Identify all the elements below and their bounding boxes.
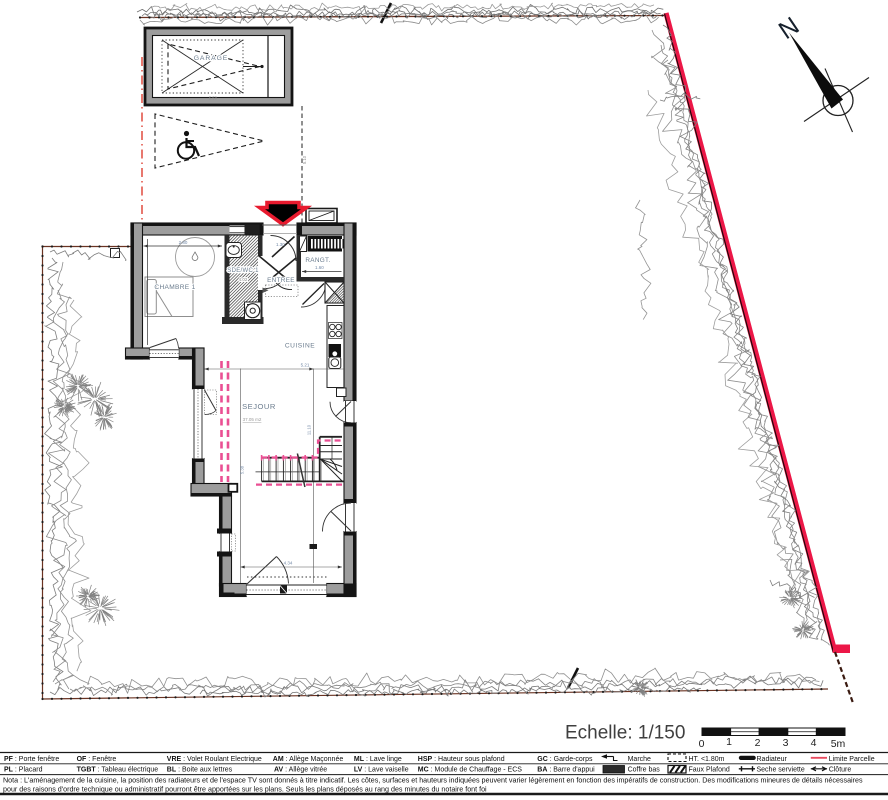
svg-text:4.34: 4.34: [284, 561, 293, 566]
svg-text:3: 3: [783, 737, 789, 749]
svg-text:Limite Parcelle: Limite Parcelle: [829, 756, 875, 763]
svg-text:Nota : L'aménagement de la cui: Nota : L'aménagement de la cuisine, la p…: [3, 777, 863, 785]
svg-text:HSP : Hauteur sous plafond: HSP : Hauteur sous plafond: [418, 756, 505, 763]
svg-text:RANGT.: RANGT.: [305, 257, 330, 264]
svg-text:37.05 m2: 37.05 m2: [243, 417, 262, 422]
svg-text:5.59: 5.59: [209, 96, 218, 101]
svg-text:pour des raisons d'ordre techn: pour des raisons d'ordre technique ou ad…: [3, 786, 487, 794]
svg-text:GC : Garde-corps: GC : Garde-corps: [537, 756, 593, 763]
svg-text:Marche: Marche: [628, 756, 651, 763]
svg-text:SDE/WC 1: SDE/WC 1: [227, 268, 259, 274]
svg-text:ML : Lave linge: ML : Lave linge: [354, 756, 402, 763]
svg-text:ENTREE: ENTREE: [267, 277, 295, 284]
svg-text:1.30: 1.30: [276, 242, 285, 247]
svg-text:HT. <1.80m: HT. <1.80m: [689, 756, 725, 763]
svg-text:2: 2: [755, 737, 761, 749]
svg-text:PF : Porte fenêtre: PF : Porte fenêtre: [4, 756, 59, 763]
svg-text:VRE : Volet Roulant Electrique: VRE : Volet Roulant Electrique: [167, 756, 262, 763]
svg-text:4: 4: [811, 737, 817, 749]
svg-text:CHAMBRE 1: CHAMBRE 1: [154, 284, 195, 291]
svg-text:PL : Placard: PL : Placard: [4, 767, 43, 774]
svg-text:Seche serviette: Seche serviette: [757, 767, 805, 774]
svg-text:0: 0: [699, 738, 705, 750]
svg-text:1: 1: [726, 736, 732, 748]
svg-text:SEJOUR: SEJOUR: [242, 402, 276, 411]
svg-text:LV : Lave vaiselle: LV : Lave vaiselle: [354, 767, 409, 774]
svg-text:11.10: 11.10: [307, 424, 312, 435]
svg-text:2.80: 2.80: [179, 240, 188, 245]
svg-text:BA : Barre d'appui: BA : Barre d'appui: [537, 767, 595, 774]
svg-text:Coffre bas: Coffre bas: [628, 767, 661, 774]
svg-text:Clôture: Clôture: [829, 767, 852, 774]
svg-text:AM : Allège Maçonnée: AM : Allège Maçonnée: [273, 756, 344, 763]
svg-text:CUISINE: CUISINE: [285, 343, 315, 350]
svg-text:4.02: 4.02: [239, 277, 248, 282]
svg-text:5.21: 5.21: [301, 363, 310, 368]
svg-text:1.60: 1.60: [315, 265, 324, 270]
svg-text:Radiateur: Radiateur: [757, 756, 788, 763]
svg-text:TGBT : Tableau électrique: TGBT : Tableau électrique: [77, 767, 159, 774]
svg-text:Echelle: 1/150: Echelle: 1/150: [565, 723, 685, 744]
svg-text:OF : Fenêtre: OF : Fenêtre: [77, 756, 117, 763]
svg-text:GARAGE: GARAGE: [194, 55, 228, 62]
svg-text:5.38: 5.38: [240, 465, 245, 474]
svg-text:MC : Module de Chauffage - ECS: MC : Module de Chauffage - ECS: [418, 767, 522, 774]
svg-text:5.10: 5.10: [302, 155, 307, 164]
svg-text:AV : Allège vitrée: AV : Allège vitrée: [274, 767, 327, 774]
svg-text:BL : Boite aux lettres: BL : Boite aux lettres: [167, 767, 233, 774]
svg-text:5m: 5m: [831, 738, 846, 750]
svg-text:Faux Plafond: Faux Plafond: [689, 767, 730, 774]
